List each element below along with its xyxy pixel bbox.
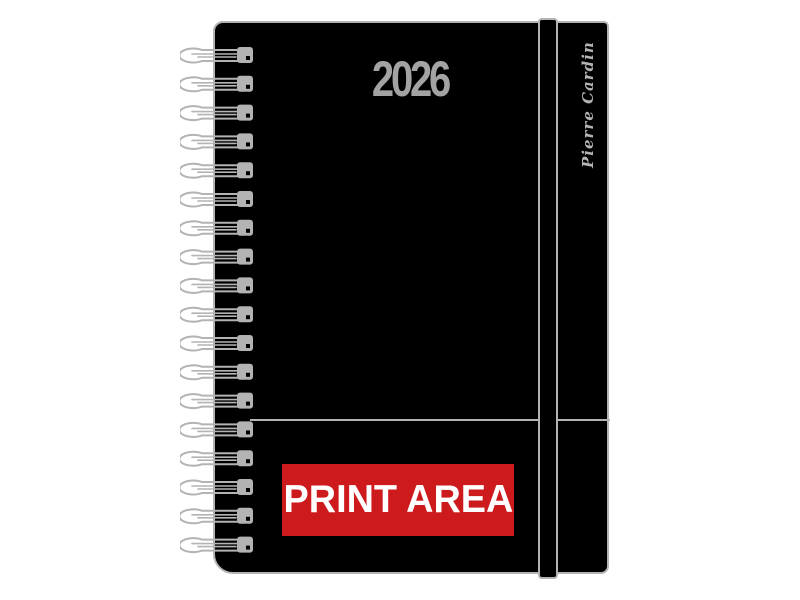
spiral-loop (180, 162, 253, 178)
spiral-loop (180, 393, 253, 409)
spiral-loop (180, 47, 253, 63)
spiral-loop (180, 421, 253, 437)
spiral-loop (180, 537, 253, 553)
spiral-loop (180, 450, 253, 466)
spiral-loop (180, 76, 253, 92)
spiral-binding-icon (180, 38, 258, 562)
spiral-loop (180, 105, 253, 121)
spiral-loop (180, 335, 253, 351)
product-mockup: 2026 PRINT AREA Pierre Cardin (0, 0, 800, 600)
spiral-loop (180, 508, 253, 524)
spiral-loop (180, 191, 253, 207)
spiral-loop (180, 220, 253, 236)
year-label: 2026 (346, 54, 474, 104)
spiral-loop (180, 364, 253, 380)
spiral-loop (180, 133, 253, 149)
print-area-badge: PRINT AREA (282, 464, 514, 536)
spiral-loop (180, 249, 253, 265)
elastic-strap (538, 18, 558, 579)
brand-signature: Pierre Cardin (579, 56, 597, 168)
spiral-loop (180, 277, 253, 293)
print-area-label: PRINT AREA (283, 478, 513, 522)
spiral-loop (180, 306, 253, 322)
spiral-loop (180, 479, 253, 495)
